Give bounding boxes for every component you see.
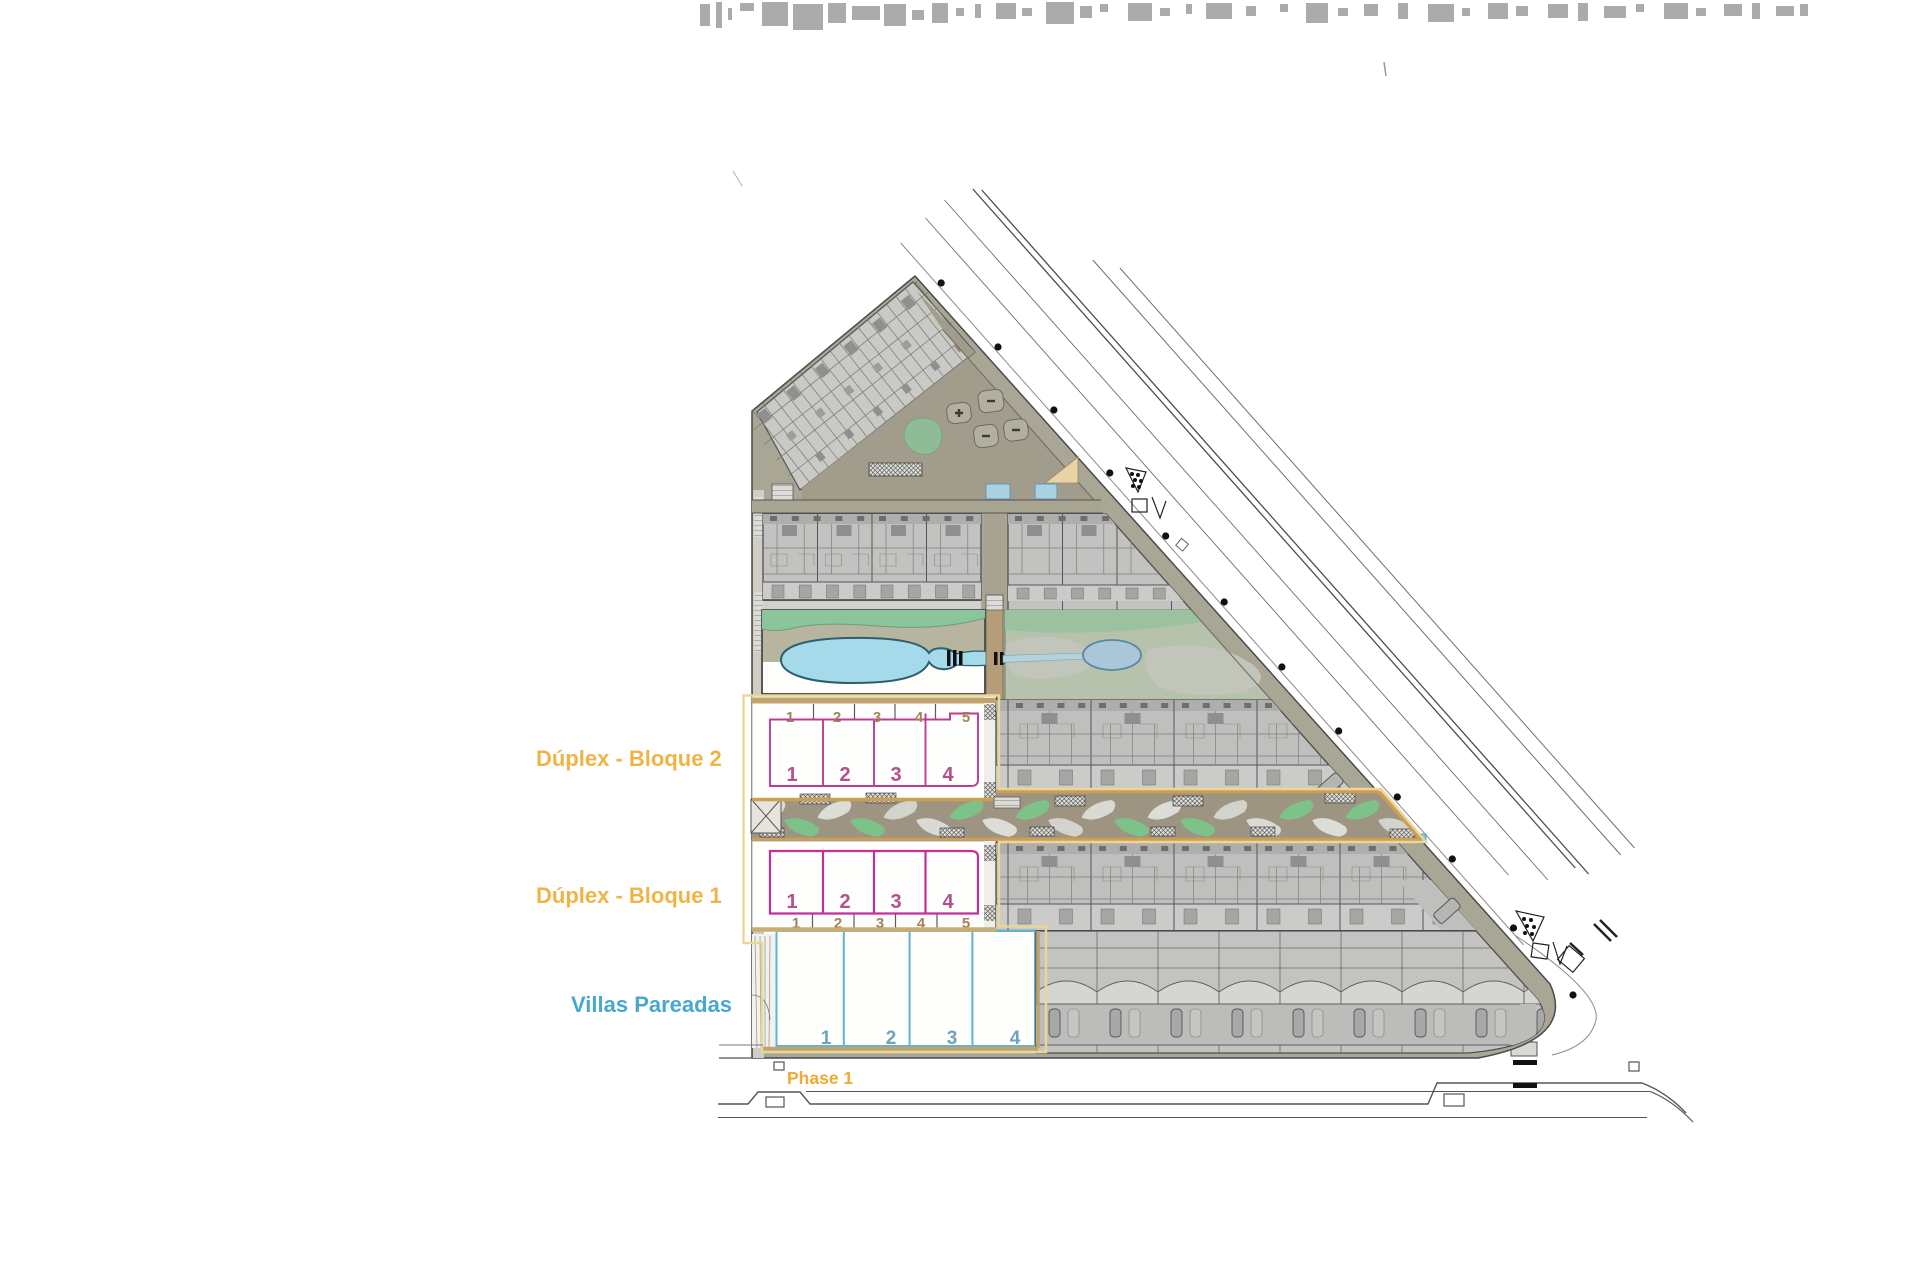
svg-text:3: 3 xyxy=(947,1028,958,1049)
svg-text:1: 1 xyxy=(821,1028,832,1049)
svg-text:2: 2 xyxy=(886,1028,897,1049)
svg-text:1: 1 xyxy=(786,764,797,786)
svg-text:1: 1 xyxy=(786,891,797,913)
svg-text:1: 1 xyxy=(786,709,794,726)
svg-text:2: 2 xyxy=(839,891,850,913)
svg-text:2: 2 xyxy=(833,709,841,726)
svg-text:Dúplex - Bloque 1: Dúplex - Bloque 1 xyxy=(536,883,722,908)
svg-text:Villas Pareadas: Villas Pareadas xyxy=(571,992,732,1017)
svg-text:3: 3 xyxy=(873,709,881,726)
svg-text:3: 3 xyxy=(890,764,901,786)
svg-text:4: 4 xyxy=(942,891,954,913)
svg-text:Dúplex - Bloque 2: Dúplex - Bloque 2 xyxy=(536,746,722,771)
svg-text:4: 4 xyxy=(915,709,924,726)
svg-text:3: 3 xyxy=(890,891,901,913)
svg-text:5: 5 xyxy=(962,709,970,726)
svg-text:4: 4 xyxy=(1010,1028,1021,1049)
svg-text:2: 2 xyxy=(839,764,850,786)
svg-text:4: 4 xyxy=(942,764,954,786)
svg-text:Phase 1: Phase 1 xyxy=(787,1068,853,1088)
